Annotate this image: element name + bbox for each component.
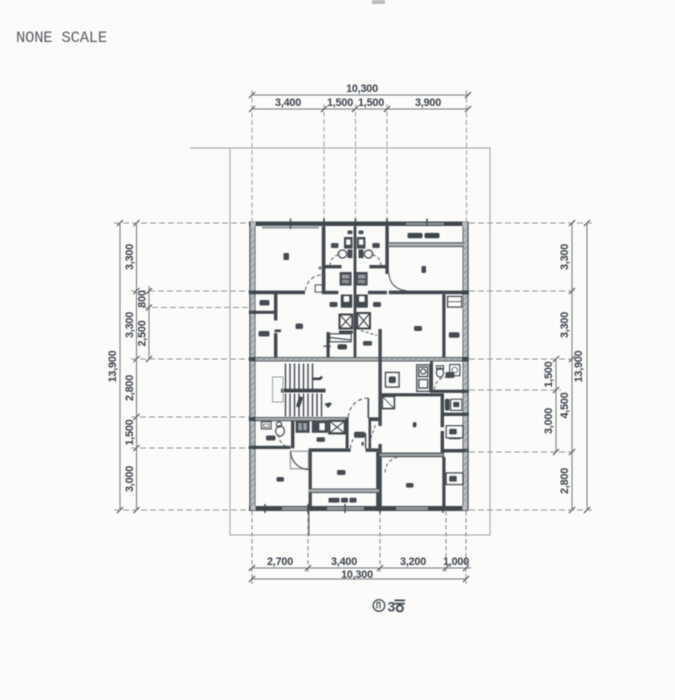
svg-text:3,900: 3,900 bbox=[415, 97, 441, 109]
svg-text:10,300: 10,300 bbox=[346, 83, 378, 95]
svg-text:1,500: 1,500 bbox=[124, 419, 136, 445]
svg-text:1,500: 1,500 bbox=[543, 361, 555, 387]
svg-text:3,300: 3,300 bbox=[124, 312, 136, 338]
svg-text:3,000: 3,000 bbox=[543, 408, 555, 434]
svg-text:10,300: 10,300 bbox=[341, 569, 373, 581]
svg-text:3,400: 3,400 bbox=[331, 556, 357, 568]
svg-text:3,400: 3,400 bbox=[275, 97, 301, 109]
svg-text:1,500: 1,500 bbox=[358, 97, 384, 109]
svg-text:3,300: 3,300 bbox=[559, 312, 571, 338]
svg-text:13,900: 13,900 bbox=[107, 350, 119, 382]
svg-text:2,800: 2,800 bbox=[559, 468, 571, 494]
svg-text:3,000: 3,000 bbox=[124, 466, 136, 492]
svg-text:13,900: 13,900 bbox=[573, 350, 585, 382]
svg-text:1,500: 1,500 bbox=[327, 97, 353, 109]
svg-text:2,500: 2,500 bbox=[137, 320, 149, 346]
svg-text:2,700: 2,700 bbox=[267, 556, 293, 568]
svg-text:3: 3 bbox=[388, 599, 396, 615]
svg-text:4,500: 4,500 bbox=[559, 392, 571, 418]
svg-text:1,000: 1,000 bbox=[443, 556, 469, 568]
svg-text:3,200: 3,200 bbox=[400, 556, 426, 568]
svg-text:NONE SCALE: NONE SCALE bbox=[16, 29, 107, 47]
svg-text:800: 800 bbox=[137, 290, 149, 308]
svg-text:3,300: 3,300 bbox=[124, 244, 136, 270]
svg-text:3,300: 3,300 bbox=[559, 244, 571, 270]
svg-text:2,800: 2,800 bbox=[124, 375, 136, 401]
